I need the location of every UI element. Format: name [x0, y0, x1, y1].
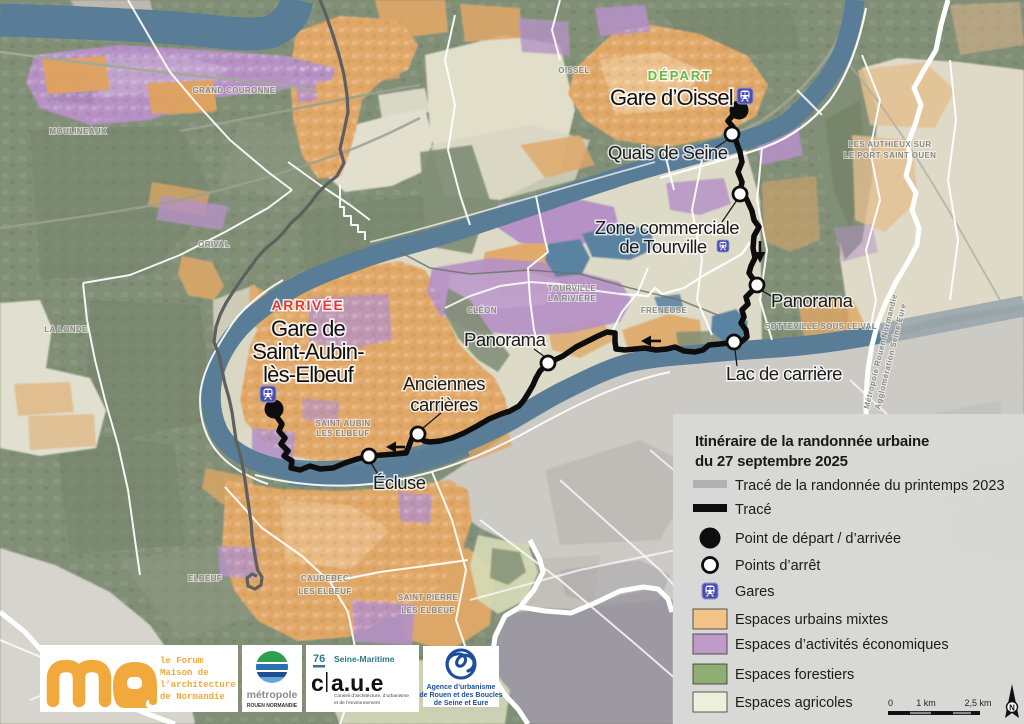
- svg-text:Panorama: Panorama: [771, 290, 854, 311]
- svg-text:Zone commerciale: Zone commerciale: [595, 217, 739, 238]
- svg-text:Itinéraire de la randonnée urb: Itinéraire de la randonnée urbaine: [695, 433, 929, 450]
- svg-text:Tracé: Tracé: [735, 502, 772, 518]
- svg-text:Tracé de la randonnée du print: Tracé de la randonnée du printemps 2023: [735, 478, 1005, 494]
- svg-text:TOURVILLE: TOURVILLE: [548, 284, 597, 293]
- svg-text:c: c: [311, 670, 324, 696]
- svg-text:Gares: Gares: [735, 584, 775, 600]
- svg-text:ARRIVÉE: ARRIVÉE: [272, 297, 345, 313]
- svg-text:1 km: 1 km: [916, 698, 936, 708]
- svg-text:Anciennes: Anciennes: [403, 373, 485, 394]
- svg-text:0: 0: [888, 698, 893, 708]
- svg-text:Espaces agricoles: Espaces agricoles: [735, 695, 853, 711]
- svg-text:Gare d’Oissel: Gare d’Oissel: [610, 85, 733, 110]
- svg-text:le Forum: le Forum: [160, 656, 204, 666]
- svg-text:lès-Elbeuf: lès-Elbeuf: [263, 362, 355, 387]
- svg-text:LES ELBEUF: LES ELBEUF: [316, 429, 369, 438]
- svg-text:Points d’arrêt: Points d’arrêt: [735, 558, 820, 574]
- svg-text:Maison de: Maison de: [160, 668, 209, 678]
- svg-text:du 27 septembre 2025: du 27 septembre 2025: [695, 453, 848, 470]
- svg-text:a.u.e: a.u.e: [331, 670, 383, 696]
- svg-text:Agence d’urbanisme: Agence d’urbanisme: [427, 684, 496, 691]
- svg-text:de Tourville: de Tourville: [619, 236, 706, 257]
- svg-text:de Rouen et des Boucles: de Rouen et des Boucles: [419, 692, 502, 699]
- svg-text:LES ELBEUF: LES ELBEUF: [401, 606, 454, 615]
- svg-text:N: N: [1009, 704, 1015, 713]
- svg-text:FRENEUSE: FRENEUSE: [641, 306, 688, 315]
- svg-text:LE PORT SAINT OUEN: LE PORT SAINT OUEN: [844, 151, 937, 160]
- svg-text:CLÉON: CLÉON: [467, 306, 497, 315]
- svg-text:carrières: carrières: [410, 394, 478, 415]
- svg-text:76: 76: [313, 653, 325, 665]
- svg-text:LA LONDE: LA LONDE: [44, 325, 88, 334]
- svg-text:MOULINEAUX: MOULINEAUX: [49, 127, 107, 136]
- svg-text:SOTTEVILLE SOUS LE VAL: SOTTEVILLE SOUS LE VAL: [765, 322, 877, 331]
- svg-text:Écluse: Écluse: [373, 472, 426, 493]
- svg-text:Espaces urbains mixtes: Espaces urbains mixtes: [735, 612, 888, 628]
- svg-text:l’architecture: l’architecture: [160, 680, 236, 690]
- svg-text:DÉPART: DÉPART: [648, 68, 712, 83]
- svg-text:LA RIVIÈRE: LA RIVIÈRE: [548, 294, 596, 303]
- svg-text:Panorama: Panorama: [464, 329, 547, 350]
- svg-text:LES ELBEUF: LES ELBEUF: [298, 587, 351, 596]
- svg-text:Espaces forestiers: Espaces forestiers: [735, 667, 854, 683]
- svg-text:CAUDEBEC: CAUDEBEC: [301, 574, 349, 583]
- svg-text:Espaces d’activités économique: Espaces d’activités économiques: [735, 637, 949, 653]
- svg-text:SAINT PIERRE: SAINT PIERRE: [398, 593, 459, 602]
- svg-text:de Seine et Eure: de Seine et Eure: [434, 700, 489, 707]
- svg-text:LES AUTHIEUX SUR: LES AUTHIEUX SUR: [848, 140, 931, 149]
- svg-text:Seine-Maritime: Seine-Maritime: [334, 654, 395, 664]
- svg-text:métropole: métropole: [247, 689, 298, 701]
- svg-text:Gare de: Gare de: [271, 316, 345, 341]
- svg-text:Conseil d’architecture, d’urba: Conseil d’architecture, d’urbanisme: [334, 693, 409, 699]
- svg-text:et de l’environnement: et de l’environnement: [334, 700, 381, 706]
- svg-text:Lac de carrière: Lac de carrière: [726, 363, 842, 384]
- svg-text:ROUEN NORMANDIE: ROUEN NORMANDIE: [247, 703, 298, 709]
- svg-text:ORIVAL: ORIVAL: [198, 240, 230, 249]
- svg-text:ELBEUF: ELBEUF: [188, 574, 222, 583]
- svg-text:Quais de Seine: Quais de Seine: [608, 142, 728, 163]
- svg-text:OISSEL: OISSEL: [558, 66, 589, 75]
- svg-text:de Normandie: de Normandie: [160, 692, 225, 702]
- svg-text:2,5 km: 2,5 km: [964, 698, 991, 708]
- svg-text:Saint-Aubin-: Saint-Aubin-: [252, 339, 364, 364]
- svg-text:Point de départ / d’arrivée: Point de départ / d’arrivée: [735, 531, 901, 547]
- svg-text:SAINT AUBIN: SAINT AUBIN: [315, 419, 370, 428]
- svg-text:GRAND COURONNE: GRAND COURONNE: [192, 86, 275, 95]
